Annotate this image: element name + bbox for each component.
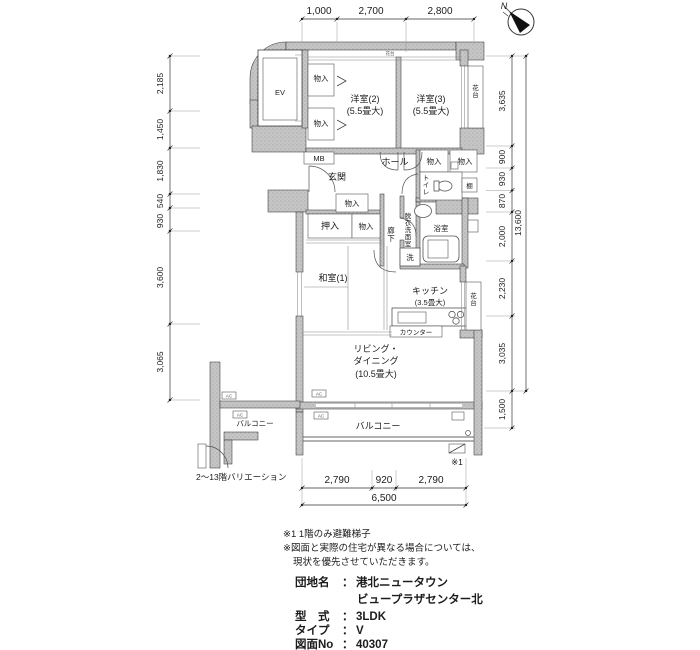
hall-label: ホール: [381, 157, 408, 167]
stove-burner-3: [453, 318, 459, 324]
ev-west-wall: [250, 100, 258, 128]
tatami-lines: [304, 246, 348, 330]
storage-door-marks: [337, 76, 346, 130]
top-dim-2: 2,800: [427, 6, 452, 17]
inset-ac-label-2: AC: [237, 413, 244, 418]
inset-caption: 2〜13階バリエーション: [196, 472, 287, 482]
right-dim-2: 930: [497, 172, 507, 186]
info-sep-3: ：: [342, 639, 354, 650]
mb-label: MB: [313, 154, 324, 163]
corridor-flower-stand-label: 花台: [386, 50, 395, 57]
bottom-dim-2: 2,790: [418, 475, 443, 486]
hatch-ref-label: ※1: [451, 457, 463, 467]
info-value-zumen: 40307: [356, 639, 388, 650]
info-value-type: 3LDK: [356, 611, 387, 623]
top-dim-0: 1,000: [306, 6, 331, 17]
washer-label: 洗: [406, 252, 414, 262]
storage-label-3: 物入: [359, 221, 374, 231]
info-label-taipu: タイプ: [295, 623, 330, 637]
toilet-west-wall: [416, 150, 420, 202]
right-wall-stub: [460, 50, 468, 66]
corridor-storage-label: 物入: [345, 198, 360, 208]
entry-west-wall: [268, 190, 308, 212]
notes: ※1 1階のみ避難梯子 ※図面と実際の住宅が異なる場合については、 現状を優先さ…: [283, 528, 481, 568]
compass: N: [501, 1, 534, 35]
floor-plan-drawing: EV 花台 物入 物入 洋室(2) (5.5畳大) 洋室(3) (5.5畳大) …: [0, 0, 700, 650]
inset-door-panel: [198, 444, 206, 468]
inset-plan: AC AC バルコニー 2〜13階バリエーション: [196, 362, 300, 482]
note-line1: ※1 1階のみ避難梯子: [283, 528, 371, 540]
left-wall-lower: [296, 412, 303, 455]
floor-plan-page: EV 花台 物入 物入 洋室(2) (5.5畳大) 洋室(3) (5.5畳大) …: [0, 0, 700, 650]
bathtub-inner: [428, 240, 448, 258]
flower-stand-kitchen-label: 花台: [470, 291, 477, 307]
living-size: (10.5畳大): [355, 368, 397, 379]
left-wall-mid: [296, 316, 303, 412]
inset-vertical-wall: [210, 362, 220, 468]
western3-size: (5.5畳大): [413, 105, 450, 116]
bottom-dim-1: 920: [376, 475, 393, 486]
japanese-west-window: [298, 272, 302, 316]
ev-east-wall: [302, 50, 308, 128]
western2-name: 洋室(2): [351, 93, 380, 104]
right-dim-3: 870: [497, 194, 507, 208]
right-dim-5: 2,230: [497, 278, 507, 300]
ev-label: EV: [275, 88, 285, 97]
info-block: 団地名 ： 港北ニュータウン ビュープラザセンター北 型 式 ： 3LDK タイ…: [295, 575, 483, 650]
inset-l-wall-h: [224, 432, 258, 440]
japanese1-label: 和室(1): [319, 272, 348, 283]
note-line3: 現状を優先させていただきます。: [293, 556, 435, 568]
right-dim-4: 2,000: [497, 226, 507, 248]
kitchen-name: キッチン: [412, 286, 448, 296]
shelf-label: 棚: [466, 181, 473, 190]
left-dim-5: 3,600: [155, 267, 165, 289]
hall-storage-label-2: 物入: [458, 156, 473, 166]
bedroom-corridor-windows: [308, 57, 462, 60]
corridor-west-wall: [380, 194, 384, 266]
japanese-sliding-doors: [303, 240, 392, 335]
oshiire-label: 押入: [321, 220, 339, 231]
kitchen-east-wall-stub: [460, 266, 466, 282]
storage-label-1: 物入: [314, 73, 329, 83]
top-dim-1: 2,700: [358, 6, 383, 17]
western3-name: 洋室(3): [417, 93, 446, 104]
info-value-danchi-2: ビュープラザセンター北: [357, 592, 483, 606]
stove-burner-1: [449, 311, 455, 317]
compass-north-label: N: [501, 1, 508, 11]
info-sep-1: ：: [342, 611, 354, 623]
inset-horizontal-wall: [220, 401, 300, 408]
right-dim-1: 900: [497, 150, 507, 164]
western2-size: (5.5畳大): [347, 105, 384, 116]
storage-label-2: 物入: [314, 118, 329, 128]
balcony-label: バルコニー: [356, 421, 401, 431]
inset-l-wall-v: [224, 440, 232, 464]
bathroom-label: 浴室: [434, 223, 449, 233]
ac-label-balcony: AC: [318, 414, 325, 419]
living-line1: リビング・: [353, 343, 398, 354]
ac-label-ldk: AC: [316, 392, 323, 397]
bottom-total-label: 6,500: [371, 493, 396, 504]
washroom-west-wall-a: [400, 196, 404, 218]
balcony-drain: [466, 431, 471, 436]
left-extension-lines: [168, 56, 200, 400]
balcony-rail: [303, 437, 474, 441]
toilet-door: [402, 174, 418, 194]
washroom-label: 脱衣洗面室: [405, 211, 412, 248]
dimensions-left: 2,185 1,450 1,830 540 930 3,600 3,065: [155, 54, 200, 403]
dimensions-bottom: 2,790 920 2,790 6,500: [300, 458, 469, 508]
info-label-type: 型 式: [295, 609, 330, 623]
toilet-label: トイレ: [423, 175, 430, 196]
flower-stand-east-label: 花台: [472, 83, 479, 99]
left-dim-0: 2,185: [155, 73, 165, 95]
left-dim-4: 930: [155, 214, 165, 228]
info-label-danchi: 団地名: [295, 575, 330, 589]
compass-needle: [509, 11, 530, 33]
info-sep-2: ：: [342, 625, 354, 637]
bath-side-box: [468, 220, 478, 232]
basin-icon: [415, 205, 432, 218]
bath-top-wall: [436, 198, 478, 214]
info-sep-0: ：: [342, 577, 354, 589]
kitchen-sink: [398, 312, 426, 323]
counter-label: カウンター: [400, 328, 433, 337]
inset-ac-label-1: AC: [226, 394, 233, 399]
corridor-label: 廊下: [387, 225, 395, 243]
entrance-label: 玄関: [328, 171, 346, 182]
living-line2: ダイニング: [353, 355, 398, 366]
left-dim-3: 540: [155, 194, 165, 208]
note-line2: ※図面と実際の住宅が異なる場合については、: [283, 542, 481, 554]
toilet-tank-icon: [434, 181, 439, 191]
dimensions-right: 3,635 900 930 870 2,000 2,230 3,035 1,50…: [484, 54, 529, 431]
hall-storage-label-1: 物入: [427, 156, 442, 166]
left-dim-1: 1,450: [155, 119, 165, 141]
western3-east-window: [462, 66, 465, 128]
left-wall-upper: [296, 212, 303, 272]
bottom-dim-0: 2,790: [324, 475, 349, 486]
bath-east-wall: [462, 198, 468, 268]
top-wall: [286, 42, 456, 50]
japanese-room-door: [374, 250, 396, 272]
left-dim-6: 3,065: [155, 351, 165, 373]
right-dim-0: 3,635: [497, 90, 507, 112]
bedroom-divider-wall: [396, 57, 401, 152]
inset-balcony-label: バルコニー: [236, 419, 273, 428]
stove-burner-2: [457, 311, 463, 317]
kitchen-size: (3.5畳大): [415, 297, 446, 307]
left-dim-2: 1,830: [155, 160, 165, 182]
balcony-small-box: [452, 412, 464, 420]
right-dim-balcony: 1,500: [497, 399, 507, 421]
info-label-zumen: 図面No: [295, 637, 333, 650]
right-wall-lower: [474, 330, 482, 455]
right-total-label: 13,600: [513, 210, 523, 236]
below-ev-wall: [252, 126, 306, 152]
right-dim-6: 3,035: [497, 343, 507, 365]
info-value-taipu: V: [356, 625, 364, 637]
toilet-icon: [438, 181, 452, 191]
info-value-danchi: 港北ニュータウン: [356, 575, 448, 589]
